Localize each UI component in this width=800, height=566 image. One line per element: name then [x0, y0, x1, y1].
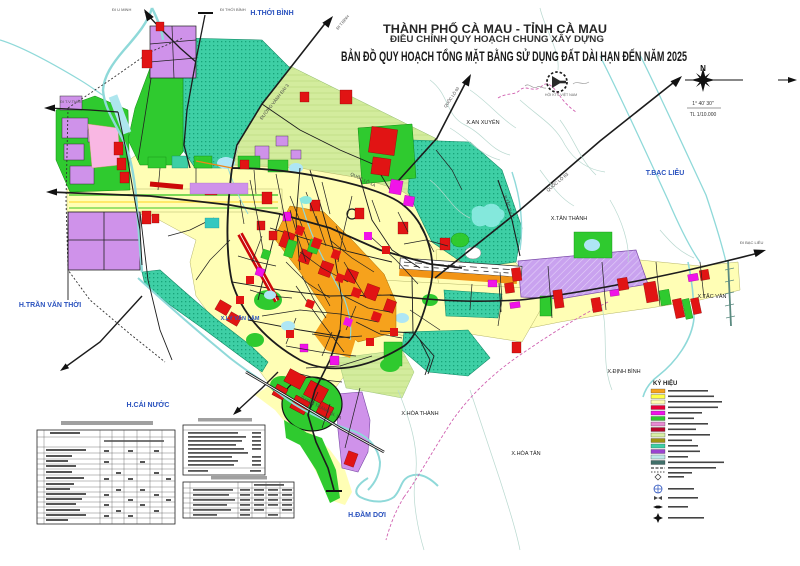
svg-text:T.BẠC LIÊU: T.BẠC LIÊU	[646, 168, 685, 177]
svg-text:ĐI U MINH: ĐI U MINH	[112, 7, 131, 12]
svg-text:ĐIỀU CHỈNH QUY HOẠCH CHUNG XÂY: ĐIỀU CHỈNH QUY HOẠCH CHUNG XÂY DỰNG	[390, 33, 604, 44]
svg-text:ĐI T.V.THỜI: ĐI T.V.THỜI	[60, 99, 81, 104]
svg-text:X.ĐỊNH BÌNH: X.ĐỊNH BÌNH	[607, 368, 640, 375]
svg-text:H.CÁI NƯỚC: H.CÁI NƯỚC	[127, 400, 170, 409]
svg-text:X.HÒA THÀNH: X.HÒA THÀNH	[401, 410, 438, 417]
svg-text:1° 40' 30": 1° 40' 30"	[692, 101, 714, 107]
svg-text:X.LÝ VĂN LÂM: X.LÝ VĂN LÂM	[221, 315, 260, 322]
svg-text:ĐI THỚI BÌNH: ĐI THỚI BÌNH	[220, 7, 246, 12]
svg-text:H.THỚI BÌNH: H.THỚI BÌNH	[250, 8, 293, 17]
svg-text:ĐI BẠC LIÊU: ĐI BẠC LIÊU	[740, 240, 763, 245]
svg-text:X.HÒA TÂN: X.HÒA TÂN	[511, 450, 540, 457]
svg-text:KÝ HIỆU: KÝ HIỆU	[653, 379, 677, 387]
svg-text:BẢN ĐỒ QUY HOẠCH TỔNG MẶT BẰNG: BẢN ĐỒ QUY HOẠCH TỔNG MẶT BẰNG SỬ DỤNG Đ…	[341, 49, 687, 64]
svg-text:TL 1/10.000: TL 1/10.000	[690, 112, 717, 118]
svg-text:X.TÂN THÀNH: X.TÂN THÀNH	[551, 215, 588, 222]
svg-text:HỘI KTS VIỆT NAM: HỘI KTS VIỆT NAM	[545, 92, 577, 97]
svg-text:X.AN XUYÊN: X.AN XUYÊN	[466, 118, 499, 126]
svg-text:X.TẮC VÂN: X.TẮC VÂN	[697, 292, 726, 300]
